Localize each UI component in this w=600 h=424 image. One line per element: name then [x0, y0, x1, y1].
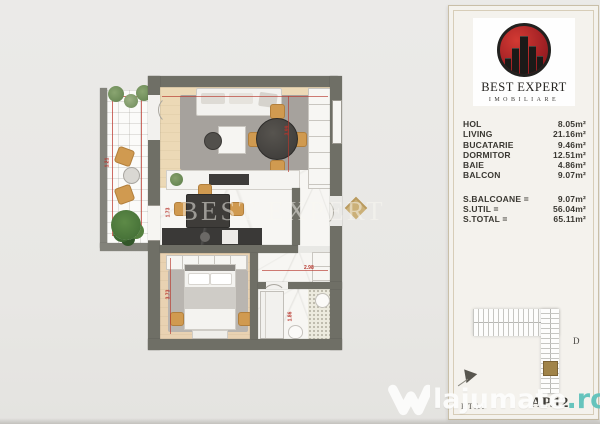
bathroom-sink	[315, 293, 330, 308]
brand-name: BEST EXPERT	[481, 80, 566, 95]
total-row: S.BALCOANE =9.07m²	[463, 194, 586, 204]
door-arc	[262, 284, 286, 308]
kitchen-island	[166, 170, 300, 190]
dimension-line	[262, 270, 328, 271]
plant-icon	[108, 86, 124, 102]
dimension-label: 3.73	[166, 290, 171, 300]
area-table: HOL8.05m² LIVING21.16m² BUCATARIE9.46m² …	[463, 119, 586, 225]
balcony-table	[123, 167, 140, 184]
round-dining-table	[256, 118, 298, 160]
pillow	[188, 273, 210, 285]
area-row: BUCATARIE9.46m²	[463, 140, 586, 150]
bed-bench	[192, 330, 228, 339]
duvet	[185, 287, 235, 309]
agency-logo: BEST EXPERT IMOBILIARE	[473, 18, 575, 106]
nightstand	[170, 312, 184, 326]
area-row: BAIE4.86m²	[463, 160, 586, 170]
watermark-text: lajumate	[433, 384, 567, 415]
keyplan-highlighted-unit	[543, 361, 558, 376]
total-row: S.TOTAL =65.11m²	[463, 214, 586, 224]
sink	[200, 232, 210, 242]
listing-photo: 1.21 3.99 1.73 3.73 2.98 1.86 BEST EXPER…	[0, 0, 600, 424]
dimension-line	[162, 96, 328, 97]
dimension-label: 1.21	[105, 158, 110, 168]
large-plant-icon	[111, 210, 141, 240]
plant-icon	[170, 173, 183, 186]
coffee-table	[218, 126, 246, 154]
area-row: DORMITOR12.51m²	[463, 150, 586, 160]
dining-chair	[270, 104, 285, 119]
brand-subtitle: IMOBILIARE	[489, 97, 559, 103]
wall-top	[148, 76, 338, 87]
kitchen-window	[148, 205, 160, 241]
wall-bedroom-hall	[250, 253, 258, 339]
cooktop	[209, 174, 249, 185]
balcony-outer-wall	[100, 88, 107, 248]
dimension-label: 2.98	[304, 266, 314, 271]
headboard	[185, 265, 235, 271]
area-totals: S.BALCOANE =9.07m² S.UTIL =56.04m² S.TOT…	[463, 194, 586, 225]
wall-kitchen-bedroom	[160, 245, 298, 253]
balcony-door-opening	[148, 95, 160, 140]
dimension-label: 1.86	[288, 312, 293, 322]
wall-bottom	[148, 339, 342, 350]
toilet	[288, 325, 303, 339]
site-watermark: lajumate.ro	[388, 380, 600, 418]
ghost-watermark: BEST EXPERT	[180, 196, 386, 227]
buildings-icon	[497, 23, 551, 77]
dimension-label: 1.73	[166, 208, 171, 218]
kitchen-counter	[162, 228, 262, 246]
door-arc	[158, 96, 186, 124]
stove	[222, 230, 238, 244]
info-panel: BEST EXPERT IMOBILIARE HOL8.05m² LIVING2…	[448, 5, 599, 420]
pillow	[210, 273, 232, 285]
area-row: HOL8.05m²	[463, 119, 586, 129]
area-row: LIVING21.16m²	[463, 129, 586, 139]
living-window	[332, 100, 342, 144]
keyplan-block-label: D	[573, 336, 580, 346]
area-row: BALCON9.07m²	[463, 170, 586, 180]
dimension-label: 3.99	[285, 126, 290, 136]
watermark-tld: .ro	[567, 384, 600, 415]
total-row: S.UTIL =56.04m²	[463, 204, 586, 214]
balcony-bottom-wall	[100, 243, 148, 251]
lajumate-w-icon	[388, 380, 430, 418]
bed	[184, 264, 236, 330]
side-table	[204, 132, 222, 150]
